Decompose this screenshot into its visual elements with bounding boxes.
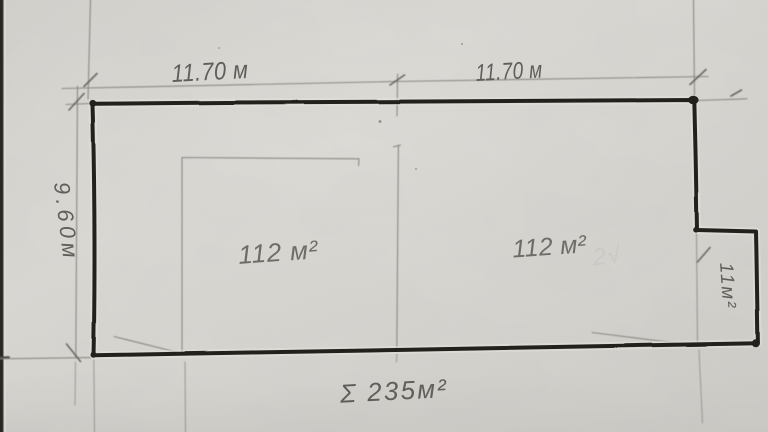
svg-text:Σ 235м²: Σ 235м² xyxy=(338,373,448,409)
svg-text:11.70 м: 11.70 м xyxy=(171,56,249,88)
svg-text:112 м²: 112 м² xyxy=(511,230,588,263)
svg-text:112 м²: 112 м² xyxy=(237,234,319,270)
svg-text:11м²: 11м² xyxy=(715,262,739,310)
svg-text:11.70 м: 11.70 м xyxy=(475,55,543,86)
svg-text:2√: 2√ xyxy=(590,241,623,271)
